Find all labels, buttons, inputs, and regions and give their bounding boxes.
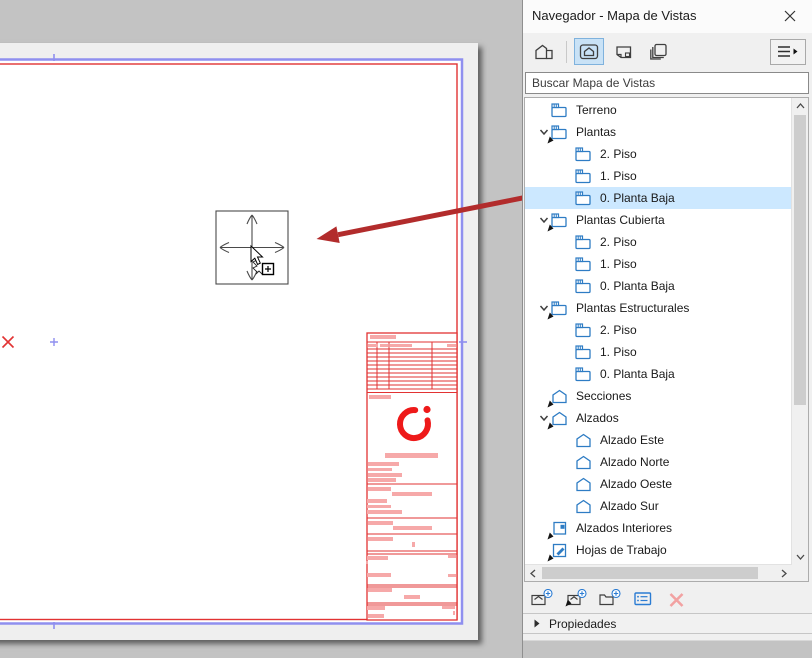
story-icon — [575, 256, 595, 273]
panel-bottom-filler — [523, 640, 812, 658]
tree-item-label: Plantas — [576, 125, 616, 139]
search-input[interactable] — [525, 72, 809, 94]
panel-menu-button[interactable] — [770, 39, 806, 65]
tree-item-plantas-estructurales[interactable]: Plantas Estructurales — [525, 297, 792, 319]
expand-right-icon — [534, 619, 540, 628]
story-icon — [575, 190, 595, 207]
tree-item-alzados[interactable]: Alzados — [525, 407, 792, 429]
story-icon — [551, 124, 571, 141]
properties-label: Propiedades — [549, 617, 616, 631]
story-icon — [575, 234, 595, 251]
view-settings-button[interactable] — [631, 588, 656, 609]
project-map-button[interactable] — [529, 38, 559, 65]
house-icon — [575, 498, 595, 515]
properties-bar[interactable]: Propiedades — [523, 613, 812, 634]
story-icon — [575, 146, 595, 163]
tree-item-label: 1. Piso — [600, 169, 637, 183]
tree-item-label: Terreno — [576, 103, 617, 117]
view-settings-icon — [633, 589, 655, 608]
story-icon — [575, 278, 595, 295]
delete-icon — [667, 589, 689, 608]
view-tree-container: Terreno Plantas 2. Piso 1. Piso 0. Plant… — [524, 97, 809, 582]
story-icon — [551, 300, 571, 317]
story-icon — [575, 344, 595, 361]
tree-item-label: Hojas de Trabajo — [576, 543, 667, 557]
tree-item-label: Alzado Norte — [600, 455, 669, 469]
tree-item-plantas-cubierta[interactable]: Plantas Cubierta — [525, 209, 792, 231]
tree-item-label: Alzados — [576, 411, 619, 425]
tree-item-label: Alzados Interiores — [576, 521, 672, 535]
new-folder-icon — [599, 589, 621, 608]
scroll-down-icon[interactable] — [792, 549, 808, 565]
horizontal-scroll-thumb[interactable] — [542, 567, 758, 579]
tree-item-0-planta-baja[interactable]: 0. Planta Baja — [525, 275, 792, 297]
tree-item-label: 0. Planta Baja — [600, 191, 675, 205]
tree-item-1-piso[interactable]: 1. Piso — [525, 165, 792, 187]
house-icon — [551, 410, 571, 427]
tree-item-plantas[interactable]: Plantas — [525, 121, 792, 143]
new-folder-button[interactable] — [597, 588, 622, 609]
tree-item-label: 0. Planta Baja — [600, 367, 675, 381]
view-map-button[interactable] — [574, 38, 604, 65]
worksheet-icon — [551, 542, 571, 559]
house-icon — [551, 388, 571, 405]
clone-folder-button[interactable] — [563, 588, 588, 609]
scroll-left-icon[interactable] — [525, 565, 541, 581]
view-tree: Terreno Plantas 2. Piso 1. Piso 0. Plant… — [525, 99, 792, 565]
scroll-right-icon[interactable] — [776, 565, 792, 581]
tree-item-label: 1. Piso — [600, 257, 637, 271]
tree-item-label: 2. Piso — [600, 235, 637, 249]
horizontal-scrollbar[interactable] — [525, 564, 792, 581]
house-icon — [575, 432, 595, 449]
new-view-button[interactable] — [529, 588, 554, 609]
scroll-up-icon[interactable] — [792, 98, 808, 114]
tree-item-0-planta-baja[interactable]: 0. Planta Baja — [525, 187, 792, 209]
tree-item-label: 1. Piso — [600, 345, 637, 359]
tree-item-label: Plantas Cubierta — [576, 213, 665, 227]
publisher-sets-button[interactable] — [644, 38, 674, 65]
tree-item-alzado-este[interactable]: Alzado Este — [525, 429, 792, 451]
interior-icon — [551, 520, 571, 537]
view-map-icon — [578, 42, 600, 62]
project-map-icon — [533, 42, 555, 62]
layout-overlay — [0, 0, 522, 658]
tree-item-label: Alzado Sur — [600, 499, 659, 513]
new-view-icon — [531, 589, 553, 608]
tree-item-label: 2. Piso — [600, 147, 637, 161]
tree-item-label: Alzado Oeste — [600, 477, 672, 491]
panel-titlebar: Navegador - Mapa de Vistas — [523, 0, 812, 33]
tree-item-alzados-interiores[interactable]: Alzados Interiores — [525, 517, 792, 539]
house-icon — [575, 476, 595, 493]
panel-title: Navegador - Mapa de Vistas — [532, 8, 697, 23]
application-window: Navegador - Mapa de Vistas — [0, 0, 812, 658]
vertical-scroll-thumb[interactable] — [794, 115, 806, 405]
tree-item-label: Alzado Este — [600, 433, 664, 447]
tree-item-alzado-sur[interactable]: Alzado Sur — [525, 495, 792, 517]
tree-item-2-piso[interactable]: 2. Piso — [525, 319, 792, 341]
layout-book-icon — [613, 42, 635, 62]
delete-button[interactable] — [665, 588, 690, 609]
clone-folder-icon — [565, 589, 587, 608]
scrollbar-corner — [792, 565, 808, 581]
story-icon — [575, 168, 595, 185]
tree-item-secciones[interactable]: Secciones — [525, 385, 792, 407]
tree-item-label: 2. Piso — [600, 323, 637, 337]
tree-item-1-piso[interactable]: 1. Piso — [525, 253, 792, 275]
layout-book-button[interactable] — [609, 38, 639, 65]
story-icon — [551, 102, 571, 119]
tree-item-terreno[interactable]: Terreno — [525, 99, 792, 121]
title-block — [366, 333, 457, 620]
navigator-toolbar — [523, 33, 812, 70]
tree-item-alzado-oeste[interactable]: Alzado Oeste — [525, 473, 792, 495]
publisher-sets-icon — [648, 42, 670, 62]
tree-item-label: Secciones — [576, 389, 631, 403]
tree-item-label: 0. Planta Baja — [600, 279, 675, 293]
house-icon — [575, 454, 595, 471]
navigator-panel: Navegador - Mapa de Vistas — [522, 0, 812, 658]
tree-item-2-piso[interactable]: 2. Piso — [525, 143, 792, 165]
tree-item-0-planta-baja[interactable]: 0. Planta Baja — [525, 363, 792, 385]
tree-item-alzado-norte[interactable]: Alzado Norte — [525, 451, 792, 473]
story-icon — [551, 212, 571, 229]
story-icon — [575, 366, 595, 383]
layout-canvas[interactable] — [0, 0, 522, 658]
toolbar-separator — [566, 41, 567, 63]
story-icon — [575, 322, 595, 339]
vertical-scrollbar[interactable] — [791, 98, 808, 565]
close-icon[interactable] — [781, 7, 799, 25]
navigator-footer-toolbar — [523, 585, 812, 611]
tree-item-1-piso[interactable]: 1. Piso — [525, 341, 792, 363]
tree-item-2-piso[interactable]: 2. Piso — [525, 231, 792, 253]
tree-item-hojas-de-trabajo[interactable]: Hojas de Trabajo — [525, 539, 792, 561]
tree-item-label: Plantas Estructurales — [576, 301, 689, 315]
